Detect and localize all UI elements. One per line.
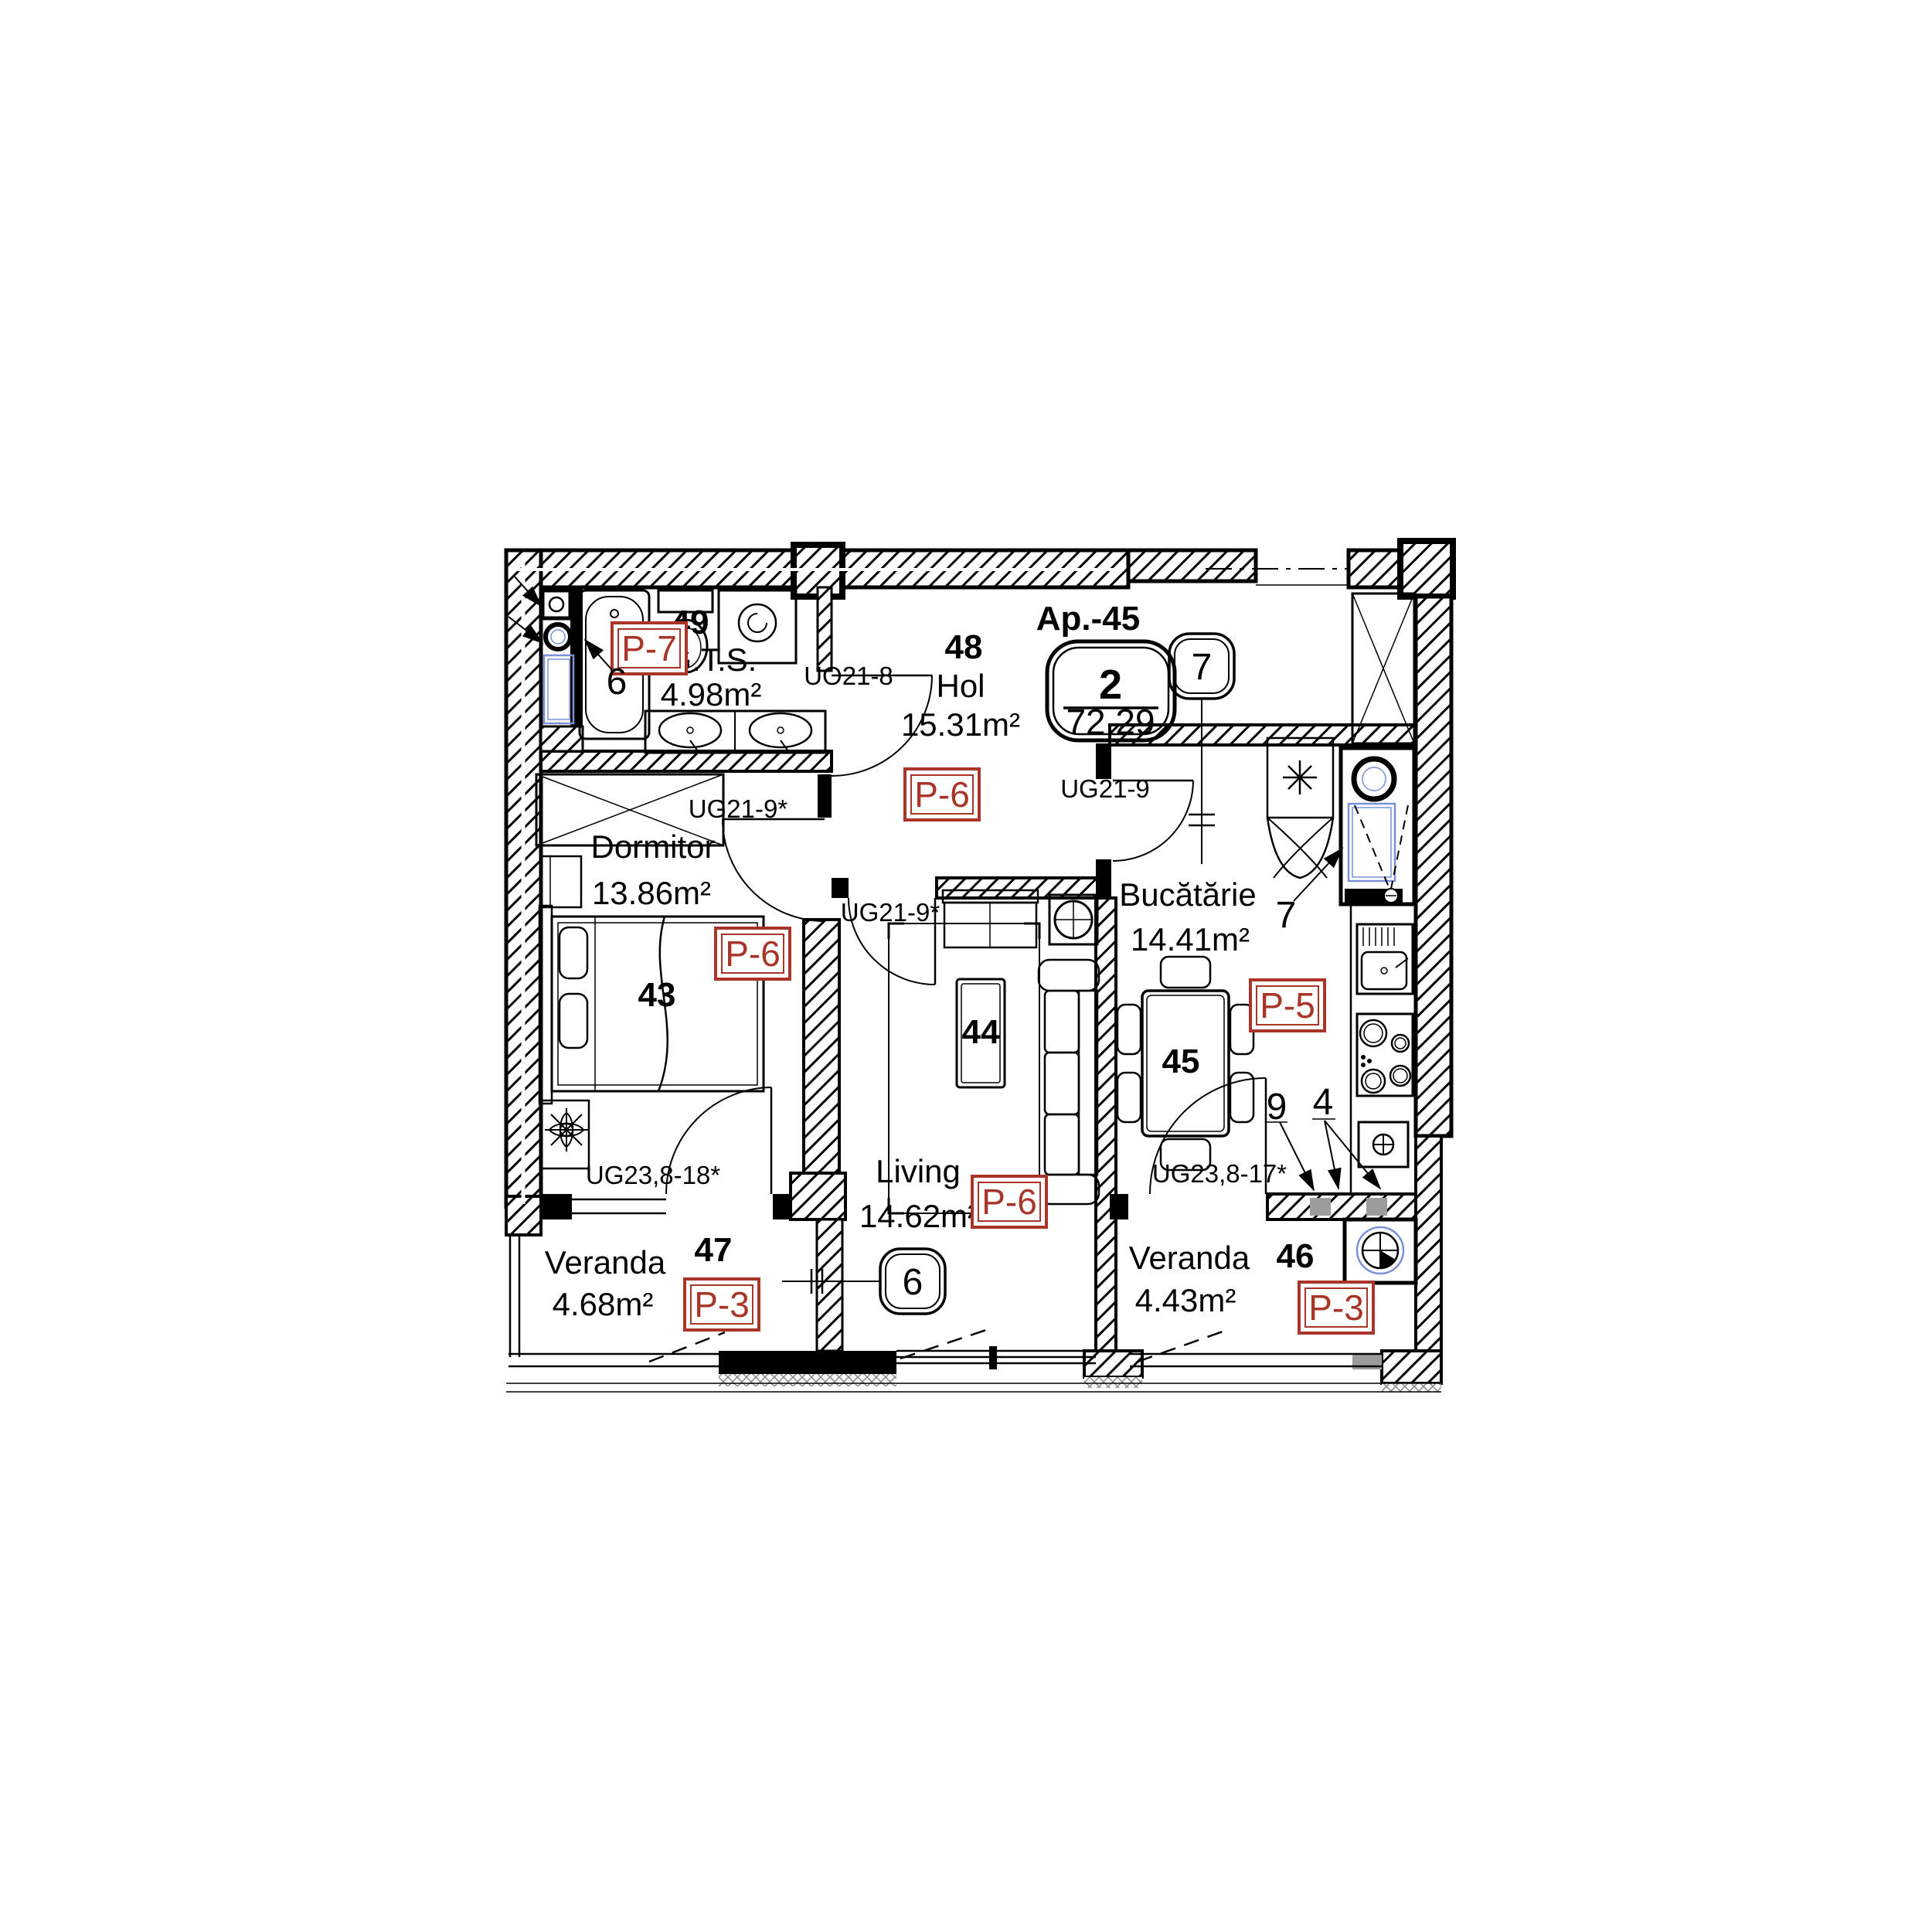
finish-tag-p6-living-label: P-6 xyxy=(981,1182,1037,1222)
tilt-indicator xyxy=(1138,1331,1225,1362)
fan-niche-icon xyxy=(1345,1219,1416,1283)
finish-tag-p3-veranda47: P-3 xyxy=(685,1279,759,1330)
callout-wall-segment-4: 4 xyxy=(1312,1082,1380,1189)
axis-marker-6: 6 xyxy=(782,1249,945,1314)
apartment-name: Ap.-45 xyxy=(1036,600,1140,638)
plant-icon xyxy=(545,1108,588,1151)
room-name-hol: Hol xyxy=(936,668,985,704)
callout-wall-segment-4-label: 4 xyxy=(1313,1082,1334,1123)
tv-stand-icon xyxy=(1049,895,1097,944)
finish-tag-p6-hol: P-6 xyxy=(905,769,979,820)
finish-tag-p3-veranda47-label: P-3 xyxy=(694,1284,750,1325)
room-area-hol: 15.31m² xyxy=(901,706,1020,743)
callout-fridge-label: 7 xyxy=(1276,895,1297,936)
room-name-veranda47: Veranda xyxy=(545,1244,666,1281)
sink-vanity-icon xyxy=(645,711,825,753)
tilt-indicator xyxy=(900,1328,993,1359)
door-label-dormitor: UG21-9* xyxy=(689,794,788,823)
room-number-dormitor: 43 xyxy=(638,976,676,1014)
callout-wall-segment-9-label: 9 xyxy=(1267,1087,1287,1128)
finish-tag-p6-dormitor-label: P-6 xyxy=(725,934,781,974)
room-number-veranda47: 47 xyxy=(695,1231,733,1269)
floor-plan: 49 G.T.S. 4.98m² 48 Hol 15.31m² Dormitor… xyxy=(0,0,1932,1932)
callout-fridge: 7 xyxy=(1276,849,1342,936)
wall-segment-4-target xyxy=(1366,1198,1387,1216)
room-area-veranda46: 4.43m² xyxy=(1135,1282,1236,1318)
small-appliance-icon xyxy=(1359,1122,1408,1167)
room-area-gts: 4.98m² xyxy=(661,676,762,713)
finish-tag-p3-veranda46-label: P-3 xyxy=(1308,1287,1364,1328)
annotations: 49 G.T.S. 4.98m² 48 Hol 15.31m² Dormitor… xyxy=(545,600,1380,1333)
room-area-dormitor: 13.86m² xyxy=(592,875,711,911)
room-name-living: Living xyxy=(876,1153,961,1189)
room-name-dormitor: Dormitor xyxy=(590,828,715,865)
door-label-gts: UO21-8 xyxy=(804,662,893,690)
axis-marker-7: 7 xyxy=(1169,634,1234,864)
door-label-kitchen: UG21-9 xyxy=(1060,774,1150,803)
room-number-hol: 48 xyxy=(945,628,983,666)
room-name-bucatarie: Bucătărie xyxy=(1119,876,1256,913)
ventilation-shaft-icon xyxy=(1352,594,1414,743)
room-area-veranda47: 4.68m² xyxy=(553,1286,654,1322)
fridge-icon xyxy=(1341,748,1414,904)
axis-marker-6-label: 6 xyxy=(903,1262,923,1303)
finish-tag-p6-dormitor: P-6 xyxy=(716,928,790,979)
room-area-bucatarie: 14.41m² xyxy=(1131,921,1250,957)
apartment-total-area: 72.29 xyxy=(1066,702,1155,742)
apartment-room-count: 2 xyxy=(1099,662,1122,708)
kitchen-sink-icon xyxy=(1357,924,1413,994)
finish-tag-p5: P-5 xyxy=(1250,980,1325,1031)
finish-tag-p3-veranda46: P-3 xyxy=(1299,1282,1373,1333)
finish-tag-p5-label: P-5 xyxy=(1260,985,1315,1026)
sofa-large-icon xyxy=(1039,960,1099,1204)
room-number-living: 44 xyxy=(962,1013,1000,1051)
boiler-icon xyxy=(1267,738,1333,878)
room-area-living: 14.62m² xyxy=(859,1198,978,1234)
wall-segment-9-target xyxy=(1310,1198,1331,1216)
door-label-living: UG21-9* xyxy=(841,898,940,927)
axis-marker-7-label: 7 xyxy=(1192,647,1213,688)
room-number-bucatarie: 45 xyxy=(1162,1043,1200,1080)
tilt-indicator xyxy=(649,1332,725,1362)
door-label-veranda46: UG23,8-17* xyxy=(1152,1159,1287,1188)
room-number-veranda46: 46 xyxy=(1277,1237,1315,1275)
door-label-veranda47: UG23,8-18* xyxy=(586,1161,720,1189)
apartment-badge: Ap.-45 2 72.29 xyxy=(1036,600,1175,742)
stove-icon xyxy=(1357,1014,1413,1096)
finish-tag-p6-hol-label: P-6 xyxy=(914,774,970,815)
room-name-veranda46: Veranda xyxy=(1129,1240,1250,1276)
finish-tag-p6-living: P-6 xyxy=(972,1176,1046,1227)
finish-tag-p7-label: P-7 xyxy=(621,628,677,668)
